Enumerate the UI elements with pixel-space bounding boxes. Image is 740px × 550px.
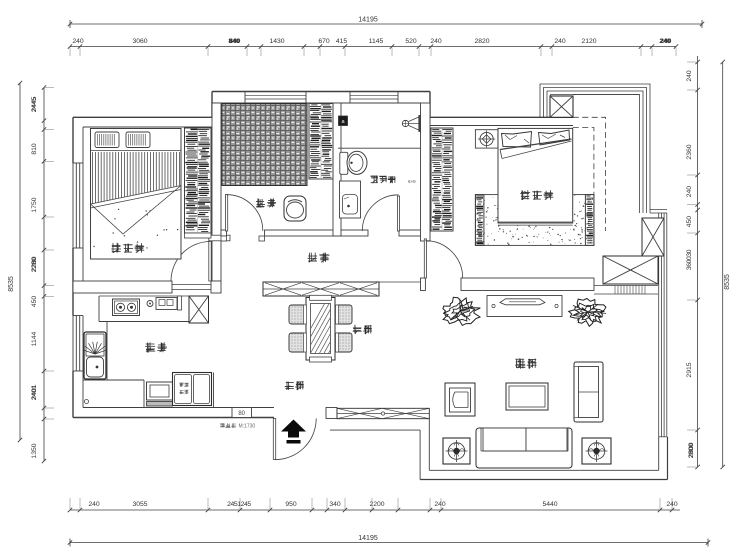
svg-text:360030: 360030 [686, 249, 693, 270]
svg-text:520: 520 [405, 38, 417, 45]
svg-text:1350: 1350 [31, 443, 38, 458]
svg-text:240: 240 [434, 501, 446, 508]
svg-text:240: 240 [686, 70, 693, 82]
svg-text:1430: 1430 [269, 38, 284, 45]
svg-text:1144: 1144 [31, 331, 38, 346]
svg-text:450: 450 [31, 296, 38, 308]
svg-text:2200: 2200 [369, 501, 384, 508]
svg-text:2820: 2820 [474, 38, 489, 45]
svg-text:950: 950 [285, 501, 297, 508]
svg-text:8535: 8535 [8, 276, 15, 292]
svg-text:6×9: 6×9 [408, 179, 416, 184]
svg-text:240: 240 [554, 38, 566, 45]
svg-text:840: 840 [229, 38, 241, 45]
svg-text:240: 240 [660, 38, 672, 45]
svg-text:340: 340 [329, 501, 341, 508]
svg-text:810: 810 [31, 143, 38, 155]
svg-text:1750: 1750 [31, 197, 38, 212]
svg-text:2401: 2401 [31, 385, 38, 400]
svg-text:240: 240 [88, 501, 100, 508]
svg-text:80: 80 [238, 411, 245, 417]
svg-text:670: 670 [318, 38, 330, 45]
svg-text:450: 450 [686, 216, 693, 228]
svg-text:2280: 2280 [31, 257, 38, 272]
svg-text:3055: 3055 [132, 501, 147, 508]
svg-text:2451245: 2451245 [227, 501, 251, 508]
svg-text:14195: 14195 [358, 17, 378, 24]
svg-text:240: 240 [430, 38, 442, 45]
svg-text:415: 415 [336, 38, 348, 45]
svg-text:1145: 1145 [369, 38, 384, 45]
svg-text:2915: 2915 [686, 362, 693, 377]
svg-text:2120: 2120 [581, 38, 596, 45]
svg-text:2360: 2360 [686, 144, 693, 159]
svg-text:5440: 5440 [542, 501, 557, 508]
svg-text:8535: 8535 [724, 274, 731, 290]
svg-text:M:1730: M:1730 [239, 423, 256, 429]
svg-text:240: 240 [686, 186, 693, 198]
svg-text:240: 240 [72, 38, 84, 45]
svg-text:2445: 2445 [31, 97, 38, 112]
svg-text:2800: 2800 [688, 443, 695, 458]
svg-text:14195: 14195 [358, 535, 378, 542]
svg-text:3060: 3060 [132, 38, 147, 45]
